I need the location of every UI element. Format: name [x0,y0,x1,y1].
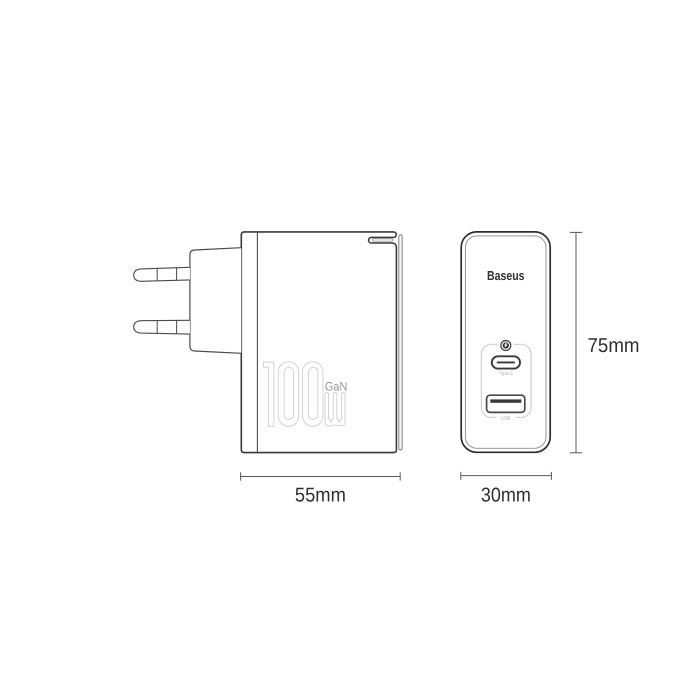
svg-text:55mm: 55mm [295,485,346,507]
svg-text:75mm: 75mm [588,335,640,357]
svg-text:Type-C: Type-C [499,371,514,377]
svg-text:30mm: 30mm [481,485,531,507]
svg-text:Baseus: Baseus [487,268,525,283]
svg-text:GaN: GaN [325,379,348,393]
svg-text:USB: USB [501,416,511,422]
